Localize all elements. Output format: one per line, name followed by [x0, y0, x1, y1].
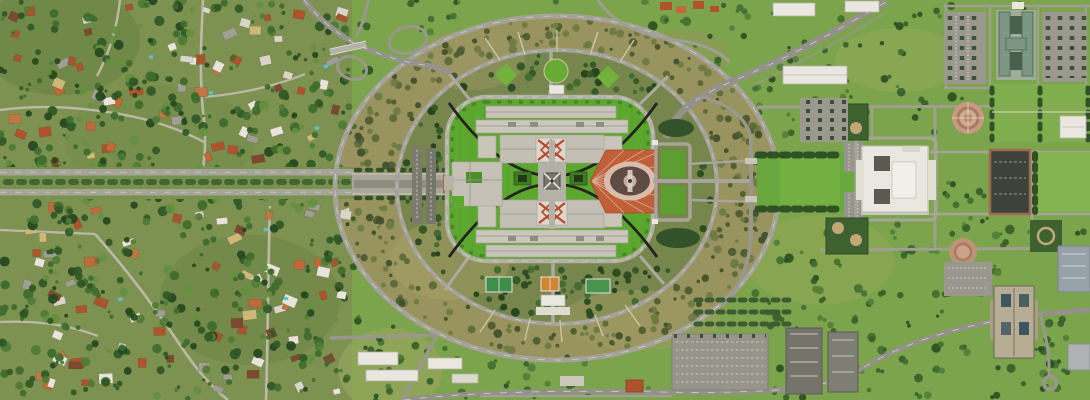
white-pavilion [549, 85, 564, 94]
east-lawn [1035, 152, 1090, 212]
copper-roof-building [996, 2, 1036, 80]
office-building [1068, 344, 1090, 370]
office-building [786, 328, 858, 394]
rose-garden [952, 102, 984, 134]
office-building [1058, 246, 1090, 292]
rose-garden [949, 238, 977, 266]
west-block [444, 162, 502, 206]
parliament-approach [352, 170, 452, 198]
parking-lot [672, 334, 768, 390]
avenue-west [0, 167, 354, 199]
old-parliament-house [856, 138, 936, 220]
white-building [541, 295, 565, 306]
white-house [1060, 116, 1086, 138]
hedge-square [1030, 220, 1062, 252]
federation-mall [757, 152, 857, 212]
screenshot [0, 0, 1090, 400]
dark-courtyard [990, 150, 1030, 214]
circular-lawn [544, 59, 568, 83]
hedge-garden [826, 218, 868, 254]
tennis-courts [486, 277, 610, 293]
white-building [536, 307, 570, 315]
aerial-photo [0, 0, 1090, 400]
